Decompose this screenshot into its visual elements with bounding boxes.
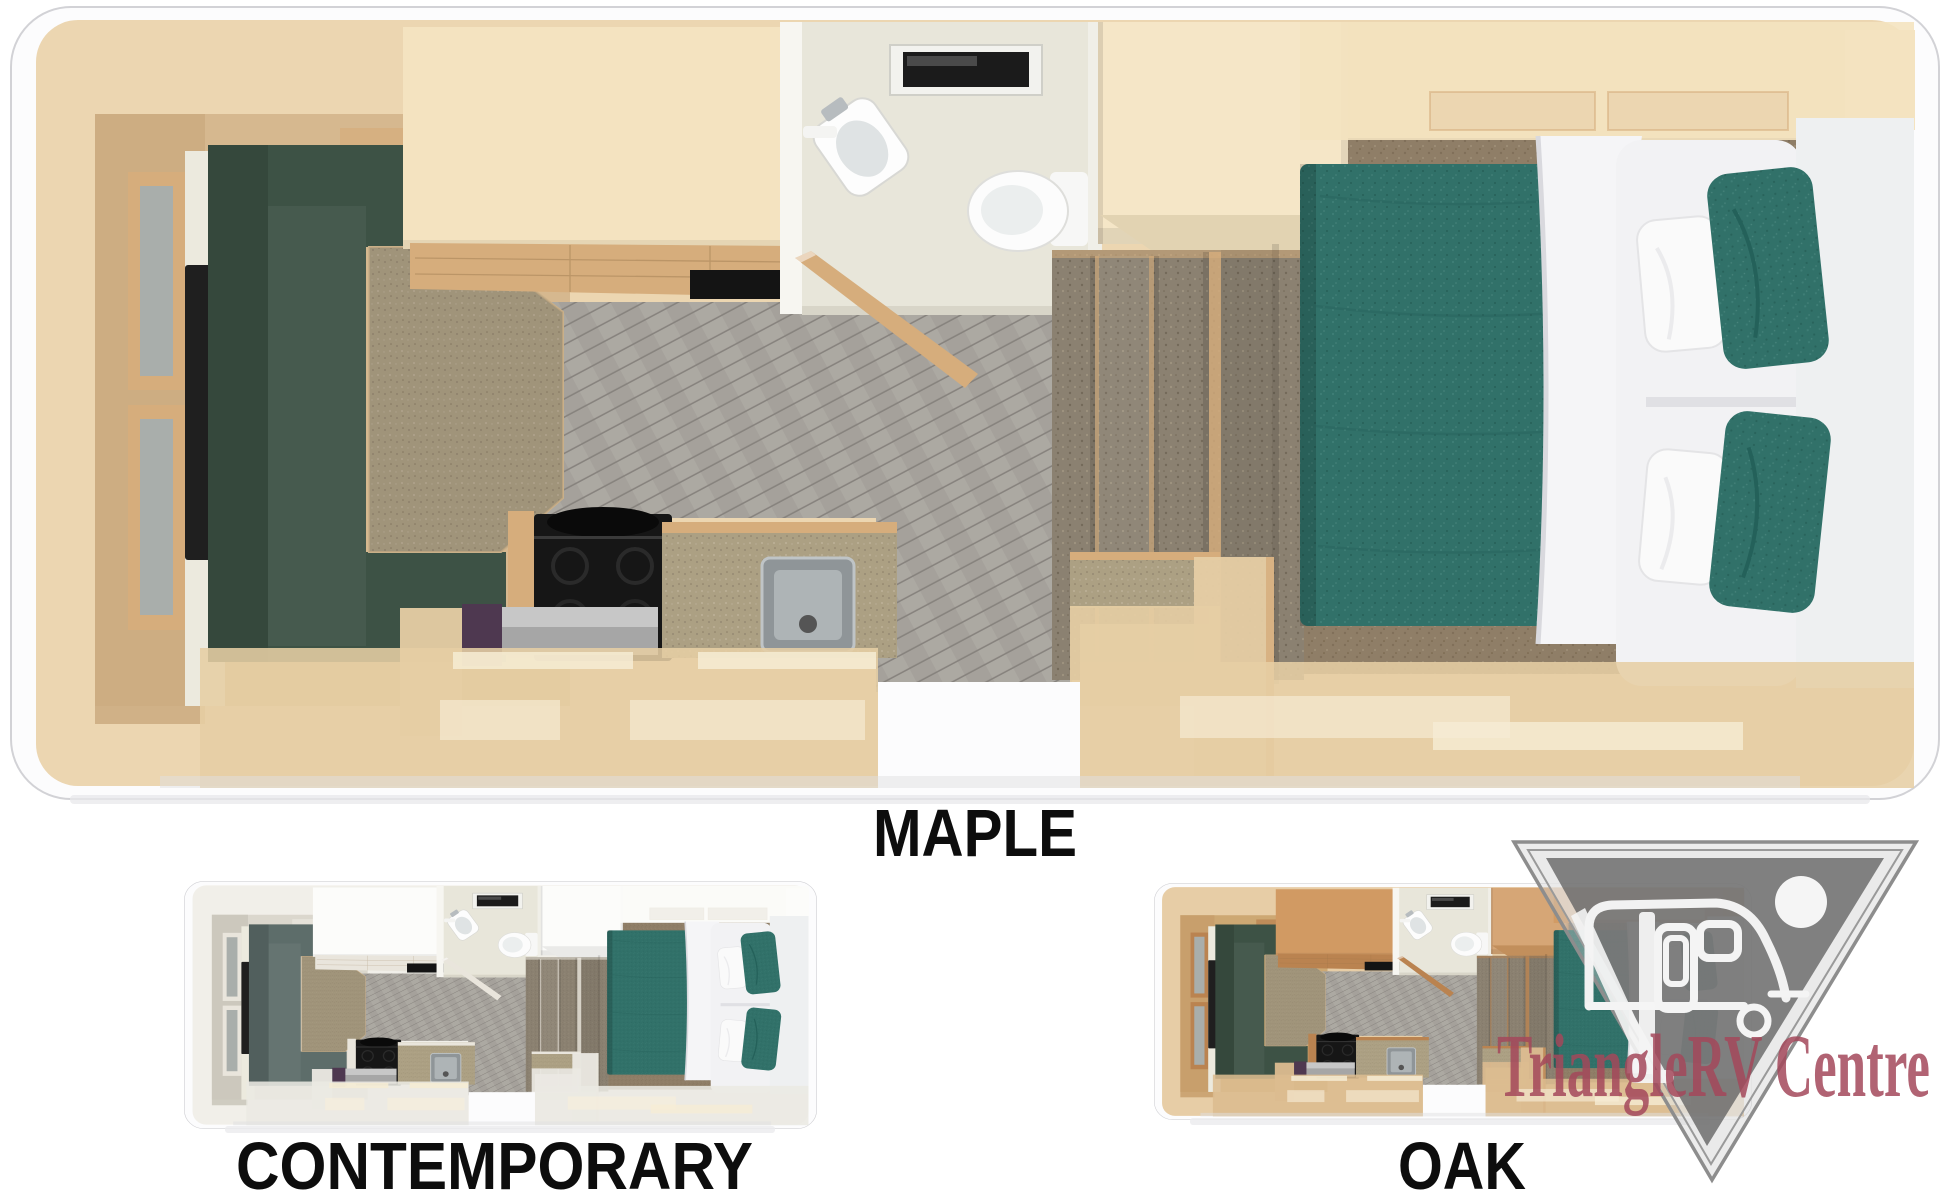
svg-text:TriangleRV Centre: TriangleRV Centre	[1497, 1017, 1930, 1117]
svg-text:MAPLE: MAPLE	[873, 796, 1077, 871]
svg-text:OAK: OAK	[1398, 1129, 1526, 1198]
svg-text:CONTEMPORARY: CONTEMPORARY	[236, 1129, 753, 1198]
